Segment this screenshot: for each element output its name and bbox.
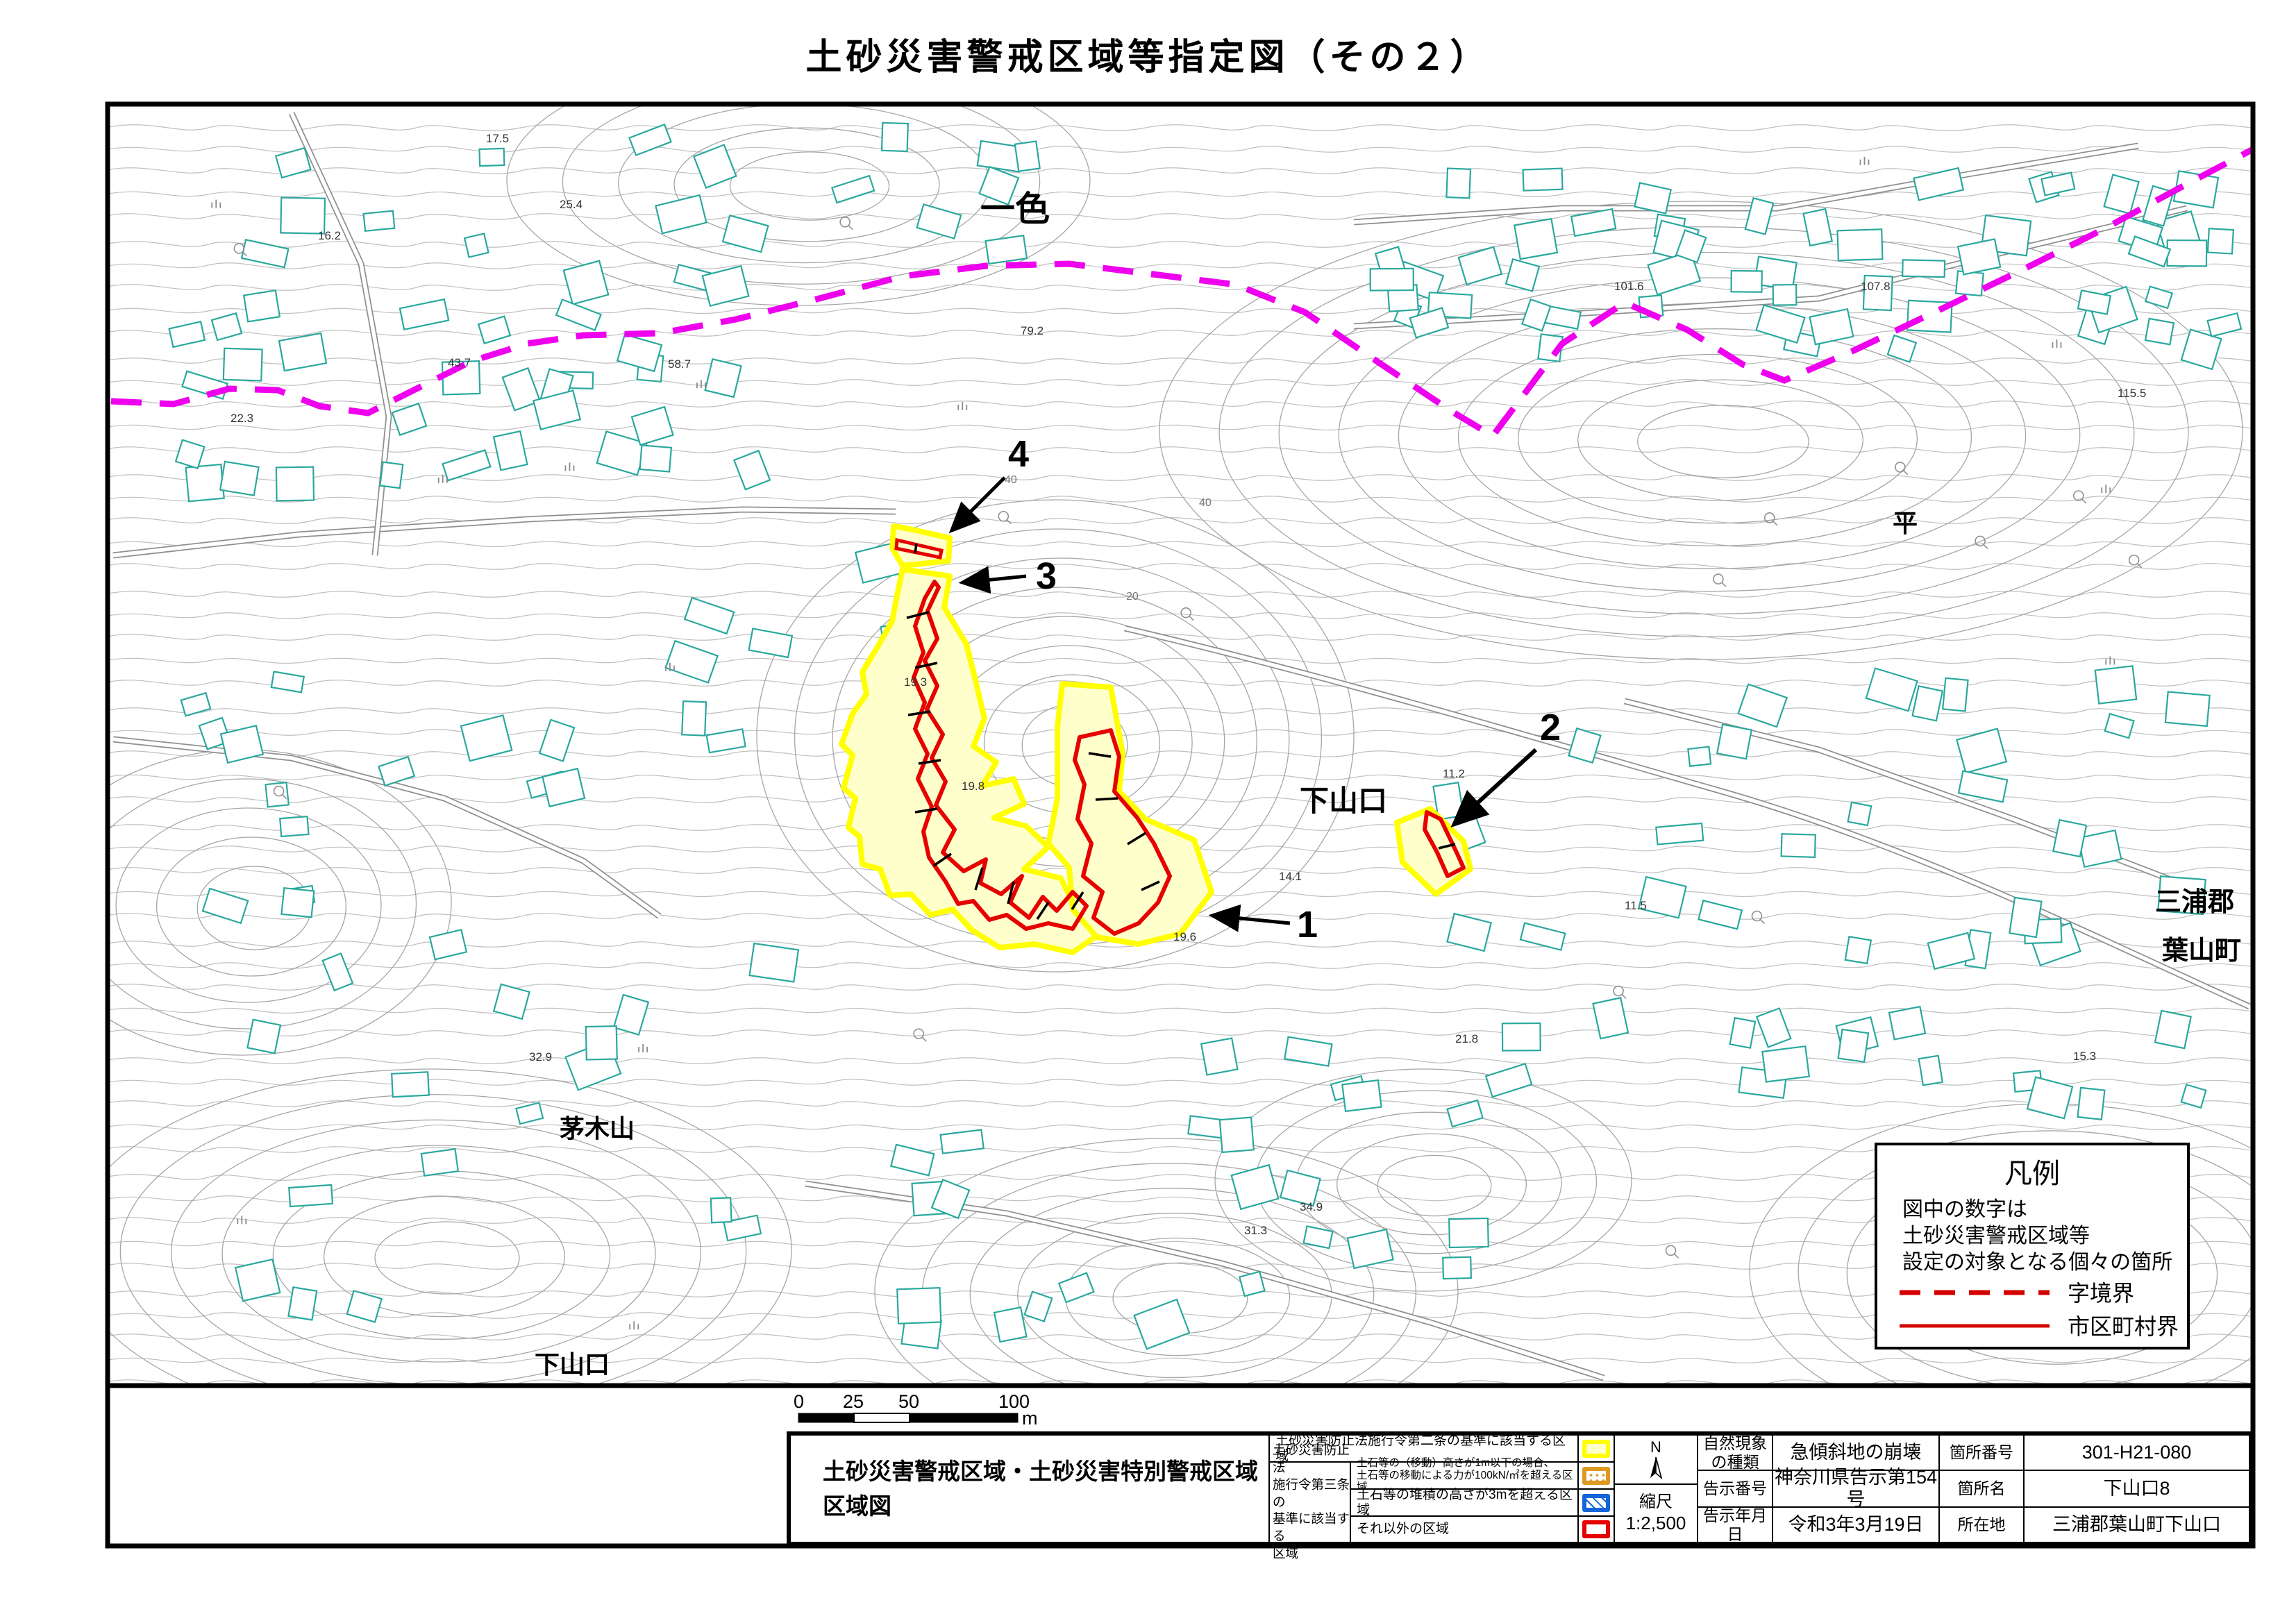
info-label-site-name: 箇所名 (1938, 1470, 2025, 1508)
info-label-site-number: 箇所番号 (1938, 1434, 2025, 1471)
spot-elevation: 19.8 (962, 780, 984, 793)
hazard-map: 4 3 2 1 一色 平 下山口 三浦郡 葉山町 茅木山 下山口 (0, 0, 2296, 1623)
other-area-swatch (1582, 1520, 1610, 1538)
label-miura-gun: 三浦郡 (2155, 888, 2234, 917)
info-value-notice-number: 神奈川県告示第154号 (1772, 1470, 1940, 1508)
spot-elevation: 11.2 (1443, 767, 1465, 780)
label-isshiki: 一色 (980, 190, 1050, 228)
spot-elevation: 11.5 (1625, 899, 1647, 912)
zone3-row1-swatch-cell (1577, 1461, 1615, 1490)
label-kayakiyama: 茅木山 (560, 1114, 635, 1143)
spot-elevation: 19.6 (1173, 930, 1196, 943)
legend-item-label: 市区町村界 (2068, 1314, 2179, 1339)
zone3-row3-label: それ以外の区域 (1350, 1515, 1579, 1543)
label-shimoyamaguchi-bottom: 下山口 (535, 1350, 610, 1379)
legend-note-line: 土砂災害警戒区域等 (1902, 1225, 2090, 1247)
spot-elevation: 31.3 (1244, 1224, 1267, 1237)
spot-elevation: 58.7 (668, 358, 691, 371)
compass-n-label: N (1650, 1438, 1661, 1456)
title-block-table: 土砂災害警戒区域・土砂災害特別警戒区域 区域図 土砂災害防止法施行令第二条の基準… (787, 1431, 2253, 1546)
contour-label: 20 (1126, 591, 1139, 603)
zone3-row2-swatch-cell (1577, 1488, 1615, 1517)
compass-cell: N (1614, 1434, 1698, 1485)
spot-elevation: 19.3 (904, 675, 927, 689)
info-value-site-number: 301-H21-080 (2023, 1434, 2250, 1471)
zone3-header-line: 施行令第三条の (1273, 1477, 1350, 1511)
zone3-header-line: 区域 (1273, 1545, 1350, 1563)
zone-number-3: 3 (1036, 555, 1057, 597)
zone3-row2-label: 土石等の堆積の高さが3mを超える区域 (1350, 1488, 1579, 1517)
spot-elevation: 115.5 (2118, 387, 2146, 400)
north-arrow-icon (1647, 1457, 1665, 1481)
zone3-header-line: 土砂災害防止法 (1273, 1442, 1350, 1477)
spot-elevation: 32.9 (529, 1050, 552, 1063)
zone-number-4: 4 (1008, 433, 1029, 475)
spot-elevation: 107.8 (1861, 280, 1891, 293)
scale-tick: 0 (794, 1391, 804, 1412)
legend-title: 凡例 (2004, 1159, 2060, 1189)
info-label-notice-date: 告示年月日 (1697, 1506, 1773, 1543)
info-value-notice-date: 令和3年3月19日 (1772, 1506, 1940, 1543)
legend-item-label: 字境界 (2068, 1281, 2134, 1306)
info-label-notice-number: 告示番号 (1697, 1470, 1773, 1508)
info-label-location: 所在地 (1938, 1506, 2025, 1543)
spot-elevation: 25.4 (560, 198, 583, 211)
zone3-row3-swatch-cell (1577, 1515, 1615, 1543)
info-label-phenomenon: 自然現象の種類 (1697, 1434, 1773, 1471)
spot-elevation: 43.7 (448, 356, 471, 369)
label-hayama-machi: 葉山町 (2161, 936, 2241, 966)
legend-box: 凡例 図中の数字は 土砂災害警戒区域等 設定の対象となる個々の箇所 字境界 市区… (1876, 1144, 2188, 1348)
scale-cell: 縮尺 1:2,500 (1614, 1483, 1698, 1543)
spot-elevation: 79.2 (1021, 324, 1044, 337)
legend-note-line: 図中の数字は (1902, 1198, 2027, 1221)
label-taira: 平 (1893, 509, 1918, 537)
zone-number-2: 2 (1540, 707, 1561, 748)
spot-elevation: 17.5 (486, 132, 509, 145)
spot-elevation: 15.3 (2073, 1050, 2096, 1063)
info-value-location: 三浦郡葉山町下山口 (2023, 1506, 2250, 1543)
contour-label: 40 (1199, 497, 1212, 509)
sheet-title-line2: 区域図 (823, 1489, 1258, 1524)
zone-number-1: 1 (1297, 904, 1318, 945)
zone3-row1-line1: 土石等の（移動）高さが1m以下の場合、 (1357, 1457, 1577, 1470)
info-value-site-name: 下山口8 (2023, 1470, 2250, 1508)
debris-deposit-swatch (1582, 1494, 1610, 1512)
scale-value: 1:2,500 (1626, 1513, 1686, 1534)
page: 土砂災害警戒区域等指定図（その２） (0, 0, 2296, 1623)
zone3-row1-label: 土石等の（移動）高さが1m以下の場合、 土石等の移動による力が100kN/㎡を超… (1350, 1461, 1579, 1490)
sheet-title-cell: 土砂災害警戒区域・土砂災害特別警戒区域 区域図 (789, 1434, 1270, 1543)
debris-height-swatch (1582, 1467, 1610, 1485)
legend-note-line: 設定の対象となる個々の箇所 (1902, 1251, 2172, 1274)
scale-bar: 0 25 50 100 m (794, 1391, 1038, 1429)
label-shimoyamaguchi-center: 下山口 (1300, 784, 1387, 817)
spot-elevation: 21.8 (1455, 1032, 1478, 1045)
sheet-title-line1: 土砂災害警戒区域・土砂災害特別警戒区域 (823, 1454, 1258, 1489)
zone2-swatch-cell (1577, 1434, 1615, 1463)
scale-unit: m (1022, 1408, 1038, 1429)
spot-elevation: 22.3 (231, 412, 253, 425)
zone3-header-line: 基準に該当する (1273, 1511, 1350, 1545)
info-value-phenomenon: 急傾斜地の崩壊 (1772, 1434, 1940, 1471)
contour-label: 40 (1005, 474, 1017, 486)
spot-elevation: 16.2 (318, 229, 341, 242)
spot-elevation: 34.9 (1300, 1200, 1323, 1213)
warning-zone-swatch (1582, 1440, 1610, 1458)
spot-elevation: 14.1 (1279, 870, 1302, 883)
scale-tick: 50 (898, 1391, 919, 1412)
scale-label: 縮尺 (1639, 1492, 1673, 1512)
spot-elevation: 101.6 (1614, 280, 1644, 293)
zone3-header-cell: 土砂災害防止法 施行令第三条の 基準に該当する 区域 (1268, 1461, 1351, 1543)
scale-tick: 25 (843, 1391, 864, 1412)
